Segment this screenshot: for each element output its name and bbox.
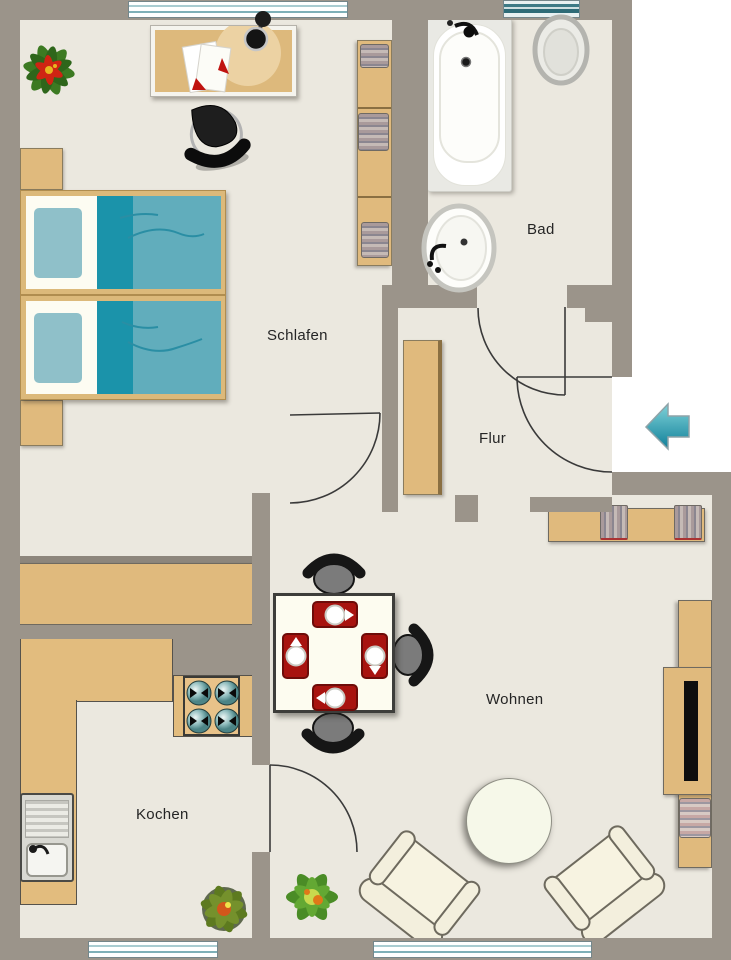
media-shelf-items bbox=[679, 798, 711, 838]
wardrobe-clothes-3 bbox=[361, 222, 389, 258]
room-label-schlafen: Schlafen bbox=[267, 327, 328, 344]
placemat-right bbox=[361, 633, 388, 679]
bed-lower-pillow bbox=[32, 311, 84, 385]
plate-bottom bbox=[325, 687, 346, 708]
floor-plan: Schlafen Bad Flur Wohnen Kochen bbox=[0, 0, 731, 960]
bed-lower bbox=[20, 295, 226, 400]
double-bed bbox=[20, 190, 226, 400]
bath-window bbox=[503, 0, 580, 18]
nightstand-top bbox=[20, 148, 63, 190]
wall-living-top bbox=[530, 497, 612, 512]
hall-cabinet bbox=[403, 340, 442, 495]
kitchen-sink bbox=[20, 793, 74, 882]
nightstand-bottom bbox=[20, 400, 63, 446]
sink-basin bbox=[26, 843, 68, 877]
bedroom-sideboard bbox=[18, 563, 258, 625]
desk bbox=[150, 25, 297, 97]
bathtub bbox=[427, 18, 512, 192]
bathtub-inner bbox=[439, 31, 500, 163]
room-label-kochen: Kochen bbox=[136, 806, 189, 823]
bed-upper bbox=[20, 190, 226, 295]
wall-bed-bath bbox=[392, 20, 428, 285]
wardrobe-clothes-1 bbox=[360, 44, 389, 68]
wall-entry-lower bbox=[612, 472, 731, 495]
stove bbox=[183, 676, 240, 736]
room-label-wohnen: Wohnen bbox=[486, 691, 543, 708]
coffee-table bbox=[466, 778, 552, 864]
tv bbox=[684, 681, 698, 781]
wall-kitchen-stub bbox=[252, 852, 270, 938]
plate-left bbox=[285, 646, 306, 667]
wall-bath-bottom-left bbox=[392, 285, 477, 308]
plate-right bbox=[364, 646, 385, 667]
plate-top bbox=[325, 604, 346, 625]
wardrobe-clothes-2 bbox=[358, 113, 389, 151]
room-label-bad: Bad bbox=[527, 221, 555, 238]
room-label-flur: Flur bbox=[479, 430, 506, 447]
sink-drainboard bbox=[25, 800, 69, 838]
entry-arrow-icon bbox=[646, 404, 689, 449]
wall-right-lower bbox=[712, 495, 731, 938]
bed-upper-pillow bbox=[32, 206, 84, 280]
wall-hall-west bbox=[382, 285, 398, 512]
wall-stub bbox=[455, 495, 478, 522]
bedroom-window bbox=[128, 1, 348, 18]
wall-left bbox=[0, 0, 20, 940]
placemat-bottom bbox=[312, 684, 358, 711]
wall-niche bbox=[585, 308, 632, 322]
placemat-left bbox=[282, 633, 309, 679]
kitchen-counter-top bbox=[20, 638, 173, 702]
living-window bbox=[373, 941, 592, 958]
wall-dining-west bbox=[252, 493, 270, 765]
sideboard-books-2 bbox=[674, 505, 702, 540]
placemat-top bbox=[312, 601, 358, 628]
kitchen-window bbox=[88, 941, 218, 958]
wall-kitchen-top bbox=[20, 625, 173, 639]
wall-bath-bottom-right bbox=[567, 285, 632, 308]
